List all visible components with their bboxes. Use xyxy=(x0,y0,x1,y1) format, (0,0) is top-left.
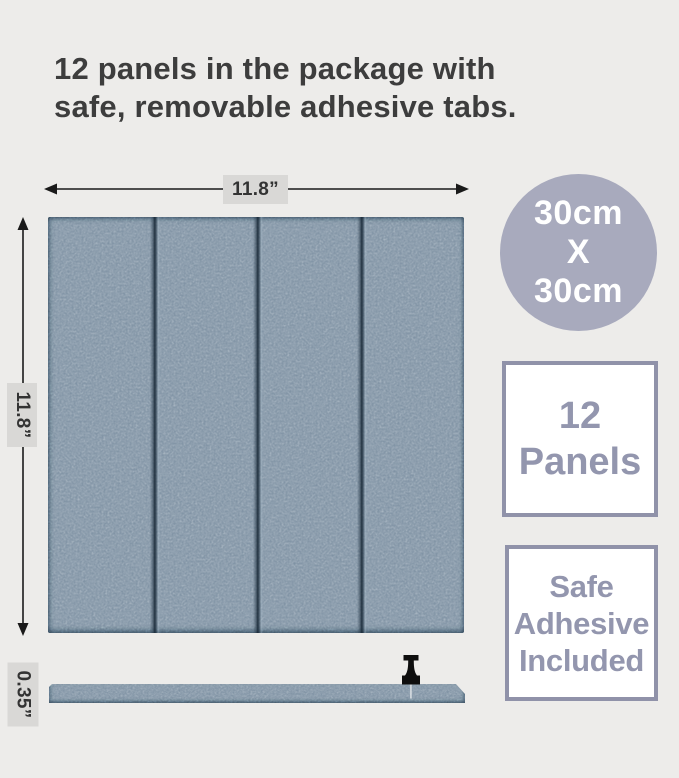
size-badge-line-1: 30cm xyxy=(534,194,623,233)
adhesive-badge-line-1: Safe xyxy=(549,568,613,605)
count-badge-line-2: Panels xyxy=(519,439,642,485)
product-infographic: 12 panels in the package with safe, remo… xyxy=(0,0,679,778)
title-line-1: 12 panels in the package with xyxy=(54,50,634,88)
page-title: 12 panels in the package with safe, remo… xyxy=(54,50,634,126)
adhesive-badge: Safe Adhesive Included xyxy=(505,545,658,701)
count-badge-line-1: 12 xyxy=(559,393,601,439)
adhesive-badge-line-3: Included xyxy=(519,642,644,679)
width-dimension-label: 11.8” xyxy=(223,175,288,204)
size-circle-badge: 30cm X 30cm xyxy=(500,174,657,331)
size-badge-line-3: 30cm xyxy=(534,272,623,311)
thickness-dimension-label: 0.35” xyxy=(8,663,39,727)
size-badge-line-2: X xyxy=(567,233,590,272)
panel-groove xyxy=(253,217,263,633)
height-dimension-label: 11.8” xyxy=(7,383,37,447)
push-pin-icon xyxy=(402,655,420,699)
title-line-2: safe, removable adhesive tabs. xyxy=(54,88,634,126)
panel-groove xyxy=(150,217,160,633)
acoustic-panel-front-image xyxy=(48,217,464,633)
panel-count-badge: 12 Panels xyxy=(502,361,658,517)
panel-groove xyxy=(357,217,367,633)
adhesive-badge-line-2: Adhesive xyxy=(514,605,649,642)
